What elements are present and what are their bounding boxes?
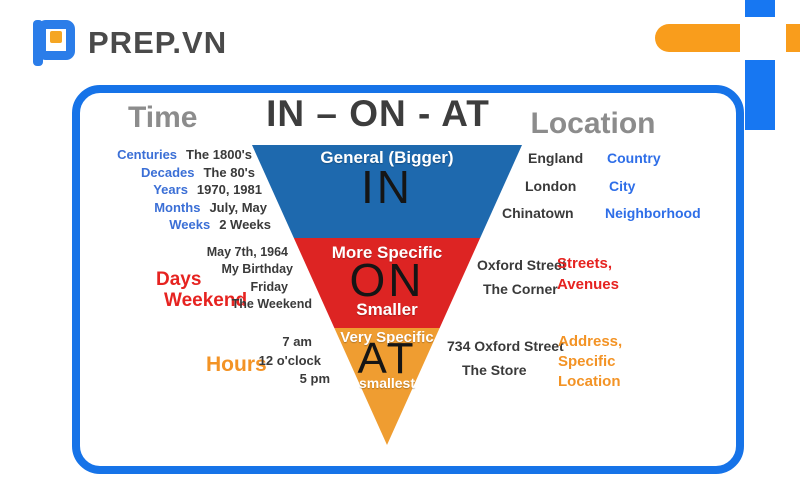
time-example: 1970, 1981	[197, 181, 262, 199]
time-in-row: Months July, May	[95, 199, 267, 217]
prep-vn-logo: PREP.VN	[33, 18, 227, 68]
pyramid-word-in: IN	[252, 164, 522, 210]
time-in-list: Centuries The 1800's Decades The 80's Ye…	[80, 146, 252, 234]
location-example: The Corner	[483, 281, 558, 297]
time-example: July, May	[209, 199, 267, 217]
time-term: Decades	[141, 164, 194, 182]
time-example: My Birthday	[85, 261, 293, 278]
poster-title: IN – ON - AT	[248, 93, 508, 135]
time-on-examples: May 7th, 1964 My Birthday Friday The Wee…	[80, 244, 288, 314]
time-at-examples: 7 am 12 o'clock 5 pm	[80, 333, 312, 389]
time-example: The 1800's	[186, 146, 252, 164]
location-example: The Store	[462, 362, 527, 378]
location-example: England	[528, 150, 583, 166]
in-on-at-poster-card: Time IN – ON - AT Location General (Bigg…	[72, 85, 744, 474]
location-category: Country	[607, 150, 661, 166]
location-example: London	[525, 178, 576, 194]
location-category: Specific	[558, 353, 616, 370]
time-example: 12 o'clock	[89, 352, 321, 371]
logo-orange-dot	[50, 31, 62, 43]
time-term: Months	[154, 199, 200, 217]
time-example: 7 am	[80, 333, 312, 352]
time-example: 5 pm	[98, 370, 330, 389]
location-heading: Location	[518, 107, 668, 141]
preposition-pyramid: General (Bigger) IN More Specific ON Sma…	[252, 145, 522, 445]
time-example: Friday	[80, 279, 288, 296]
location-example: Oxford Street	[477, 257, 566, 273]
location-example: Chinatown	[502, 205, 574, 221]
location-category: Streets,	[557, 255, 612, 272]
time-in-row: Centuries The 1800's	[80, 146, 252, 164]
location-category: Location	[558, 373, 621, 390]
time-in-row: Years 1970, 1981	[90, 181, 262, 199]
location-category: Address,	[558, 333, 622, 350]
location-category: Neighborhood	[605, 205, 701, 221]
corner-deco-orange-bar	[655, 24, 740, 52]
time-term: Centuries	[117, 146, 177, 164]
time-example: May 7th, 1964	[80, 244, 288, 261]
time-example: 2 Weeks	[219, 216, 271, 234]
time-example: The Weekend	[104, 296, 312, 313]
corner-deco-orange-tip	[786, 24, 800, 52]
location-example: 734 Oxford Street	[447, 338, 564, 354]
time-term: Weeks	[169, 216, 210, 234]
time-in-row: Weeks 2 Weeks	[99, 216, 271, 234]
corner-deco-blue-square	[745, 0, 775, 17]
time-example: The 80's	[203, 164, 255, 182]
time-heading: Time	[128, 101, 197, 135]
corner-deco-blue-bar	[745, 60, 775, 130]
prep-logo-icon	[33, 18, 79, 68]
location-category: City	[609, 178, 635, 194]
time-term: Years	[153, 181, 188, 199]
time-in-row: Decades The 80's	[83, 164, 255, 182]
pyramid-text-layer: General (Bigger) IN More Specific ON Sma…	[252, 145, 522, 445]
logo-text: PREP.VN	[88, 25, 227, 61]
location-category: Avenues	[557, 276, 619, 293]
